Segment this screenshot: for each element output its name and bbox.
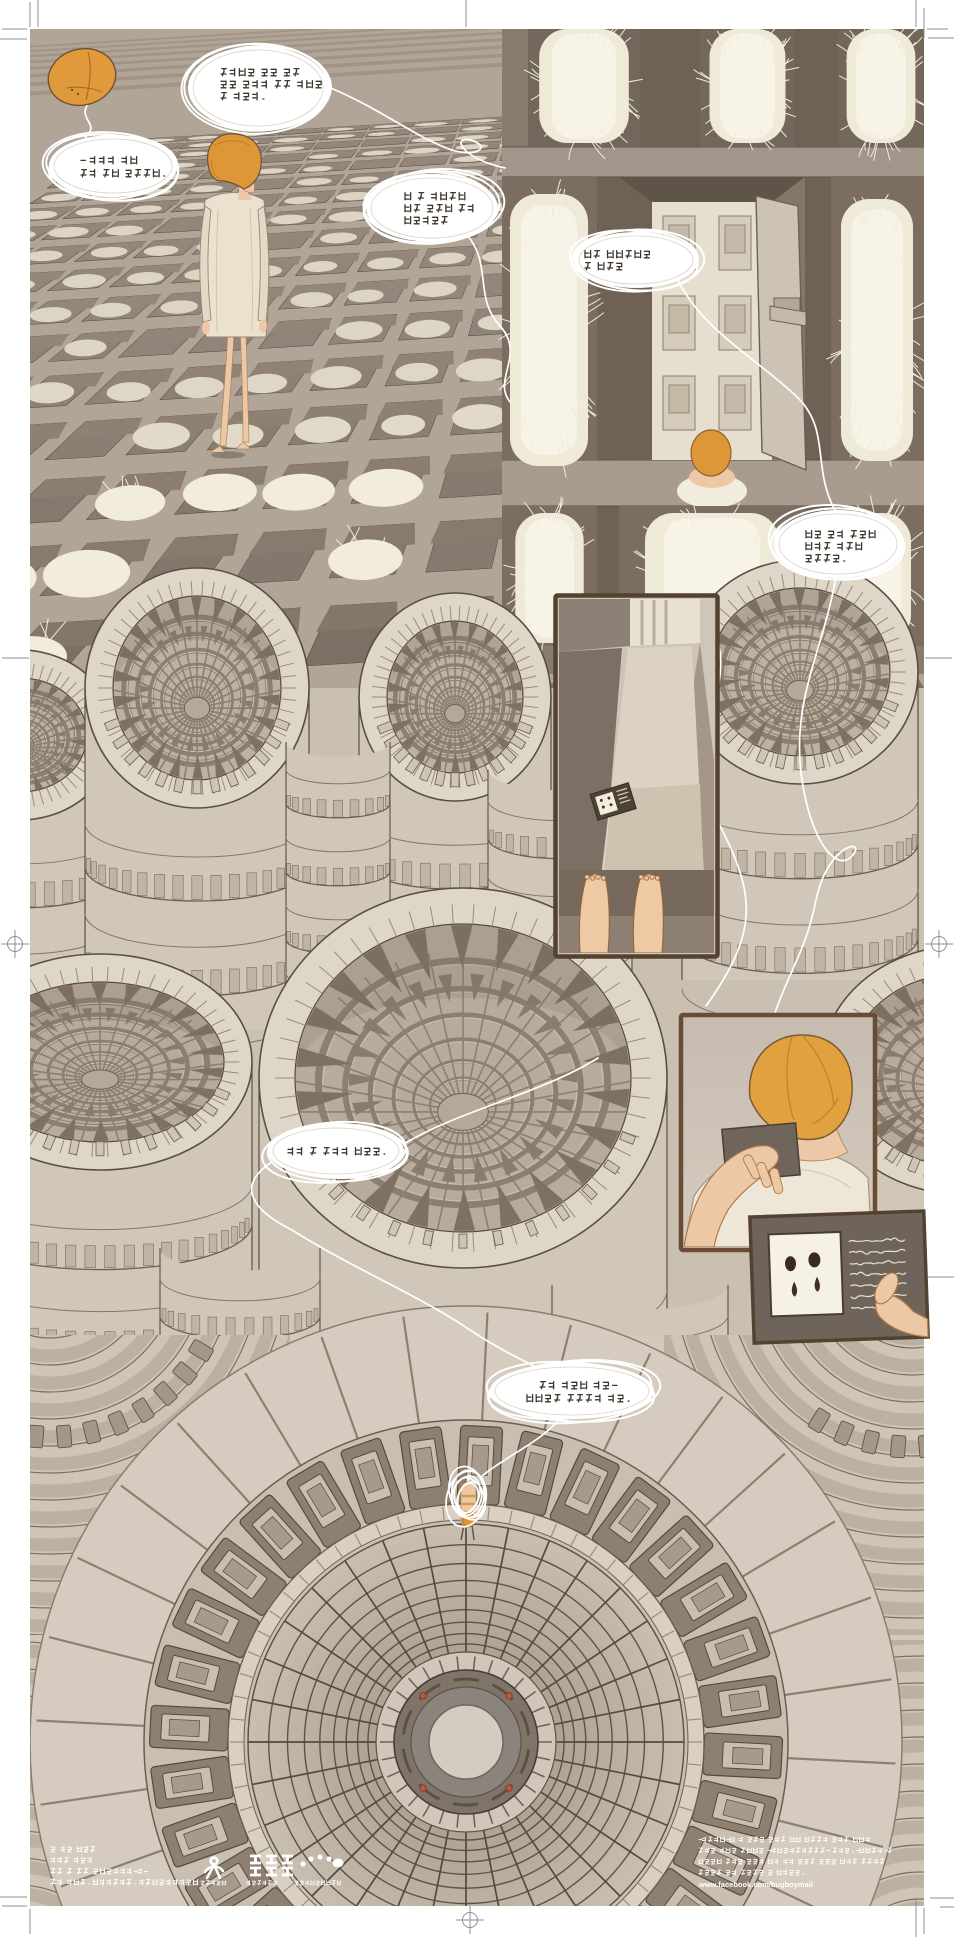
svg-text:www.facebook.com/bugboymail: www.facebook.com/bugboymail <box>698 1880 813 1889</box>
